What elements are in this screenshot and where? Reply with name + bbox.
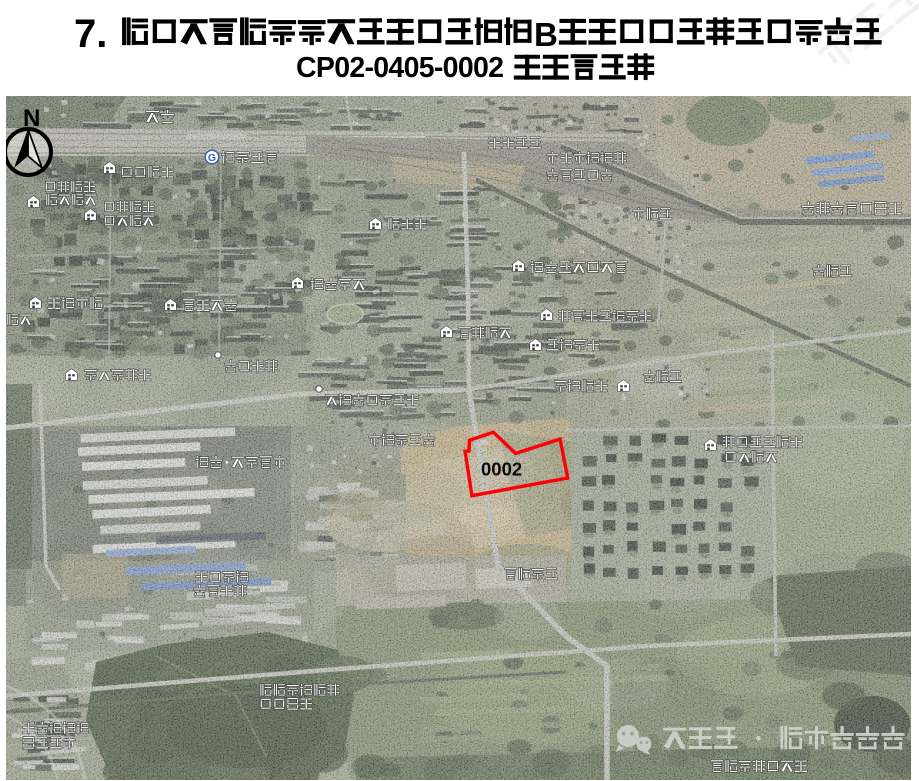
- svg-text:CP02-0405-0002: CP02-0405-0002: [296, 52, 503, 84]
- svg-text:B: B: [534, 16, 558, 53]
- svg-text:7.: 7.: [74, 12, 107, 56]
- svg-text:0002: 0002: [481, 459, 522, 480]
- svg-text:G: G: [208, 152, 216, 164]
